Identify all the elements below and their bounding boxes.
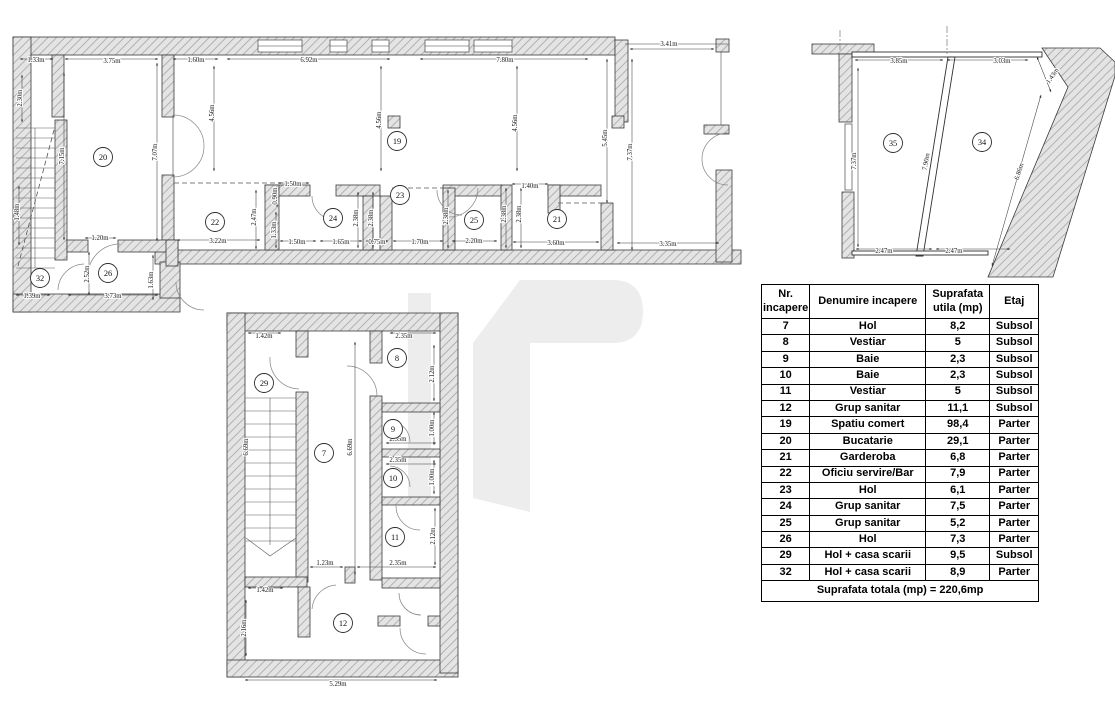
cell-area: 2,3	[926, 351, 990, 367]
dim-label: 2.30m	[17, 89, 24, 107]
dim-label: 2.52m	[84, 265, 91, 283]
dim-label: 2.38m	[516, 205, 523, 223]
cell-name: Hol	[810, 532, 926, 548]
cell-nr: 11	[762, 384, 810, 400]
cell-nr: 29	[762, 548, 810, 564]
dim-label: 2.38m	[443, 207, 450, 225]
dim-label: 6.92m	[300, 57, 318, 64]
cell-name: Vestiar	[810, 335, 926, 351]
table-row: 29Hol + casa scarii9,5Subsol	[762, 548, 1039, 564]
dim-label: 1.00m	[429, 419, 436, 437]
table-total-row: Suprafata totala (mp) = 220,6mp	[762, 581, 1039, 602]
dim-label: 1.70m	[411, 239, 429, 246]
dim-label: 5.29m	[329, 681, 347, 688]
table-row: 12Grup sanitar11,1Subsol	[762, 400, 1039, 416]
table-row: 9Baie2,3Subsol	[762, 351, 1039, 367]
dim-label: 1.23m	[316, 560, 334, 567]
dim-label: 2.35m	[395, 333, 413, 340]
cell-area: 7,3	[926, 532, 990, 548]
room-number: 9	[391, 425, 395, 434]
cell-floor: Parter	[990, 564, 1039, 580]
dim-label: 1.20m	[91, 235, 109, 242]
table-row: 8Vestiar5Subsol	[762, 335, 1039, 351]
cell-name: Grup sanitar	[810, 515, 926, 531]
cell-nr: 26	[762, 532, 810, 548]
cell-area: 8,2	[926, 319, 990, 335]
cell-floor: Parter	[990, 482, 1039, 498]
dim-label: 1.33m	[271, 221, 278, 239]
cell-name: Bucatarie	[810, 433, 926, 449]
dim-label: 2.38m	[501, 205, 508, 223]
dim-label: 1.50m	[284, 181, 302, 188]
dim-label: 4.56m	[376, 111, 383, 129]
plan-parter: 1.33m 3.75m 1.60m 6.92m 7.80m 3.41m 2.30…	[13, 37, 741, 312]
dim-label: 3.41m	[660, 41, 678, 48]
cell-floor: Parter	[990, 417, 1039, 433]
dim-label: 2.47m	[945, 248, 963, 255]
dim-label: 1.63m	[148, 271, 155, 289]
dim-label: 7.15m	[59, 147, 66, 165]
dim-label: 4.56m	[512, 114, 519, 132]
cell-floor: Parter	[990, 433, 1039, 449]
table-row: 11Vestiar5Subsol	[762, 384, 1039, 400]
cell-area: 2,3	[926, 368, 990, 384]
cell-nr: 23	[762, 482, 810, 498]
cell-name: Hol	[810, 319, 926, 335]
cell-area: 9,5	[926, 548, 990, 564]
room-number: 7	[322, 449, 326, 458]
dim-label: 1.40m	[521, 183, 539, 190]
door-arcs	[270, 357, 426, 654]
table-row: 20Bucatarie29,1Parter	[762, 433, 1039, 449]
dim-label: 6.69m	[243, 438, 250, 456]
dim-label: 2.35m	[389, 560, 407, 567]
col-header-denumire: Denumire incapere	[810, 285, 926, 319]
dim-label: 3.73m	[104, 293, 122, 300]
cell-area: 5,2	[926, 515, 990, 531]
room-number: 23	[396, 191, 404, 200]
cell-name: Oficiu servire/Bar	[810, 466, 926, 482]
dim-label: 3.03m	[993, 58, 1011, 65]
table-row: 10Baie2,3Subsol	[762, 368, 1039, 384]
cell-nr: 21	[762, 450, 810, 466]
cell-area: 29,1	[926, 433, 990, 449]
dim-label: 2.20m	[465, 238, 483, 245]
room-numbers: 29 7 8 9 10 11 12	[255, 349, 407, 633]
dim-label: 7.80m	[496, 57, 514, 64]
cell-name: Hol + casa scarii	[810, 564, 926, 580]
cell-floor: Subsol	[990, 319, 1039, 335]
dim-label: 1.39m	[23, 293, 41, 300]
cell-nr: 8	[762, 335, 810, 351]
dim-label: 7.07m	[152, 143, 159, 161]
wall	[13, 37, 615, 55]
cell-name: Vestiar	[810, 384, 926, 400]
room-number: 8	[395, 354, 399, 363]
cell-area: 6,1	[926, 482, 990, 498]
cell-name: Grup sanitar	[810, 400, 926, 416]
cell-nr: 7	[762, 319, 810, 335]
room-number: 21	[553, 215, 561, 224]
dim-label: 3.35m	[659, 241, 677, 248]
room-number: 20	[99, 153, 107, 162]
cell-floor: Subsol	[990, 368, 1039, 384]
cell-nr: 24	[762, 499, 810, 515]
room-number: 34	[978, 138, 987, 147]
dim-label: 3.22m	[209, 238, 227, 245]
room-number: 19	[393, 137, 401, 146]
cell-nr: 22	[762, 466, 810, 482]
room-number: 26	[104, 269, 112, 278]
cell-area: 8,9	[926, 564, 990, 580]
dim-label: 7.37m	[627, 143, 634, 161]
dim-label: 1.50m	[288, 239, 306, 246]
dim-label: 4.56m	[209, 104, 216, 122]
cell-floor: Subsol	[990, 400, 1039, 416]
cell-name: Spatiu comert	[810, 417, 926, 433]
dim-label: 0.90m	[272, 187, 279, 205]
cell-nr: 20	[762, 433, 810, 449]
room-number: 29	[260, 379, 268, 388]
cell-floor: Subsol	[990, 351, 1039, 367]
cell-nr: 9	[762, 351, 810, 367]
room-number: 35	[889, 139, 897, 148]
dim-label: 1.33m	[27, 57, 45, 64]
dim-label: 2.12m	[429, 365, 436, 383]
cell-name: Grup sanitar	[810, 499, 926, 515]
cell-nr: 25	[762, 515, 810, 531]
cell-name: Baie	[810, 368, 926, 384]
cell-nr: 32	[762, 564, 810, 580]
cell-floor: Parter	[990, 532, 1039, 548]
cell-name: Baie	[810, 351, 926, 367]
cell-floor: Parter	[990, 515, 1039, 531]
plan-corner: 3.85m 3.03m 1.43m 7.37m 7.90m 6.86m 2.47…	[812, 26, 1115, 277]
room-number: 10	[389, 474, 397, 483]
dim-label: 1.60m	[187, 57, 205, 64]
dim-label: 2.35m	[389, 457, 407, 464]
room-number: 22	[211, 218, 219, 227]
room-number: 32	[36, 274, 44, 283]
table-row: 7Hol8,2Subsol	[762, 319, 1039, 335]
table-row: 24Grup sanitar7,5Parter	[762, 499, 1039, 515]
table-header-row: Nr. incapere Denumire incapere Suprafata…	[762, 285, 1039, 319]
cell-nr: 10	[762, 368, 810, 384]
col-header-nr: Nr. incapere	[762, 285, 810, 319]
dim-label: 2.47m	[875, 248, 893, 255]
cell-area: 98,4	[926, 417, 990, 433]
col-header-etaj: Etaj	[990, 285, 1039, 319]
cell-area: 7,9	[926, 466, 990, 482]
table-row: 32Hol + casa scarii8,9Parter	[762, 564, 1039, 580]
cell-floor: Subsol	[990, 335, 1039, 351]
dim-label: 1.42m	[256, 587, 274, 594]
cell-area: 7,5	[926, 499, 990, 515]
dim-label: 6.86m	[1014, 162, 1026, 181]
window-icon	[258, 40, 512, 52]
table-row: 22Oficiu servire/Bar7,9Parter	[762, 466, 1039, 482]
dim-label: 0.75m	[368, 239, 386, 246]
cell-area: 5	[926, 335, 990, 351]
room-number: 12	[339, 619, 347, 628]
cell-floor: Parter	[990, 499, 1039, 515]
dim-label: 7.37m	[851, 152, 858, 170]
table-row: 25Grup sanitar5,2Parter	[762, 515, 1039, 531]
stairs	[245, 398, 296, 556]
cell-name: Hol + casa scarii	[810, 548, 926, 564]
cell-area: 11,1	[926, 400, 990, 416]
dim-label: 3.75m	[103, 58, 121, 65]
room-number: 24	[329, 214, 338, 223]
dim-label: 3.85m	[890, 58, 908, 65]
dim-label: 5.45m	[602, 129, 609, 147]
cell-nr: 19	[762, 417, 810, 433]
cell-area: 6,8	[926, 450, 990, 466]
dim-label: 1.42m	[255, 333, 273, 340]
cell-floor: Subsol	[990, 548, 1039, 564]
table-row: 19Spatiu comert98,4Parter	[762, 417, 1039, 433]
dim-label: 1.65m	[332, 239, 350, 246]
dim-label: 2.47m	[251, 208, 258, 226]
dim-label: 2.38m	[368, 209, 375, 227]
dim-label: 2.12m	[430, 527, 437, 545]
dim-label: 2.38m	[353, 209, 360, 227]
table-row: 21Garderoba6,8Parter	[762, 450, 1039, 466]
table-row: 26Hol7,3Parter	[762, 532, 1039, 548]
cell-floor: Parter	[990, 466, 1039, 482]
cell-name: Garderoba	[810, 450, 926, 466]
col-header-suprafata: Suprafata utila (mp)	[926, 285, 990, 319]
table-row: 23Hol6,1Parter	[762, 482, 1039, 498]
dim-label: 6.69m	[347, 438, 354, 456]
area-table: Nr. incapere Denumire incapere Suprafata…	[761, 284, 1039, 602]
cell-area: 5	[926, 384, 990, 400]
room-number: 11	[391, 533, 399, 542]
dim-label: 1.48m	[14, 203, 21, 221]
floor-plan-document: 1.33m 3.75m 1.60m 6.92m 7.80m 3.41m 2.30…	[0, 0, 1115, 720]
cell-floor: Parter	[990, 450, 1039, 466]
room-number: 25	[470, 216, 478, 225]
cell-floor: Subsol	[990, 384, 1039, 400]
dim-label: 1.00m	[429, 468, 436, 486]
dim-label: 3.60m	[547, 240, 565, 247]
total-area-label: Suprafata totala (mp) = 220,6mp	[762, 581, 1039, 602]
dim-label: 2.16m	[241, 619, 248, 637]
cell-name: Hol	[810, 482, 926, 498]
cell-nr: 12	[762, 400, 810, 416]
